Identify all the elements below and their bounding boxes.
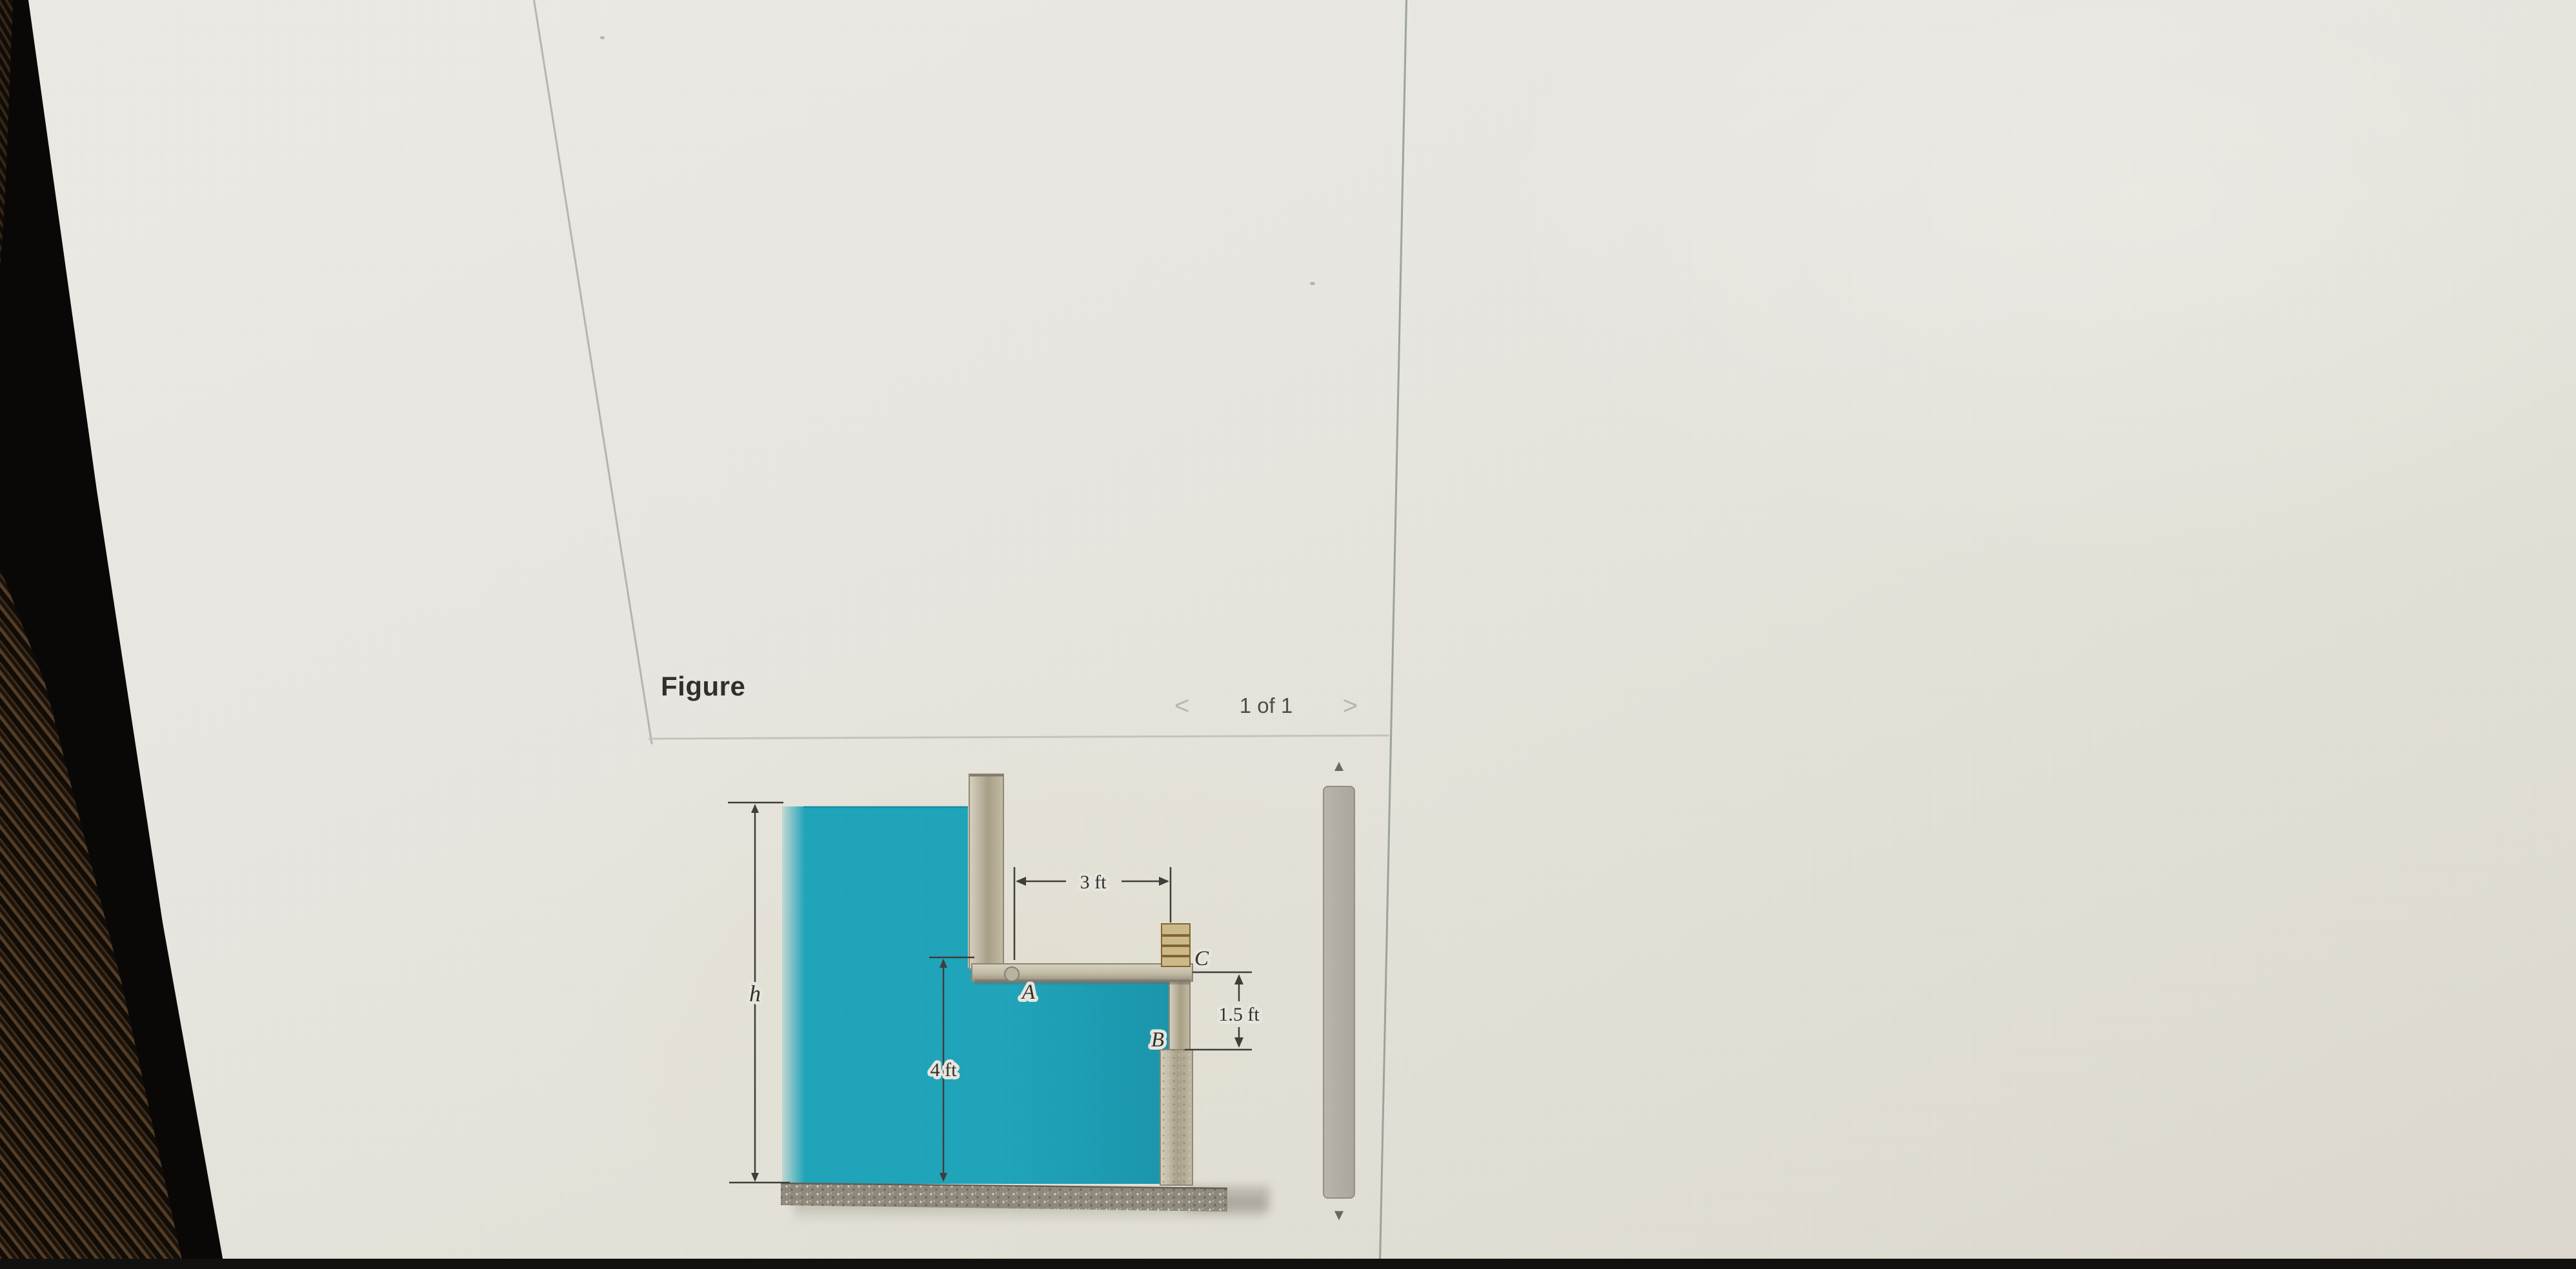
figure-diagram: h 4 ft 3 ft 1.5 ft A B C [0,0,2576,1269]
label-point-b: B [1151,1028,1164,1052]
stop-block-c [1162,924,1190,966]
retaining-wall-upper [969,774,1003,969]
scrollbar-down-icon[interactable]: ▼ [1322,1208,1356,1223]
scrollbar-up-icon[interactable]: ▲ [1322,759,1356,774]
photo-bottom-edge [0,1259,2576,1269]
retaining-wall-lower [1160,1050,1192,1185]
scrollbar-thumb[interactable] [1323,786,1355,1199]
label-h: h [749,981,761,1006]
label-4ft: 4 ft [931,1059,957,1081]
photographed-screen: Figure < 1 of 1 > [0,0,2576,1269]
label-3ft: 3 ft [1080,872,1107,893]
label-point-c: C [1194,947,1209,970]
hinge-pin [1005,967,1019,981]
label-point-a: A [1021,981,1036,1004]
label-1-5ft: 1.5 ft [1218,1004,1260,1025]
